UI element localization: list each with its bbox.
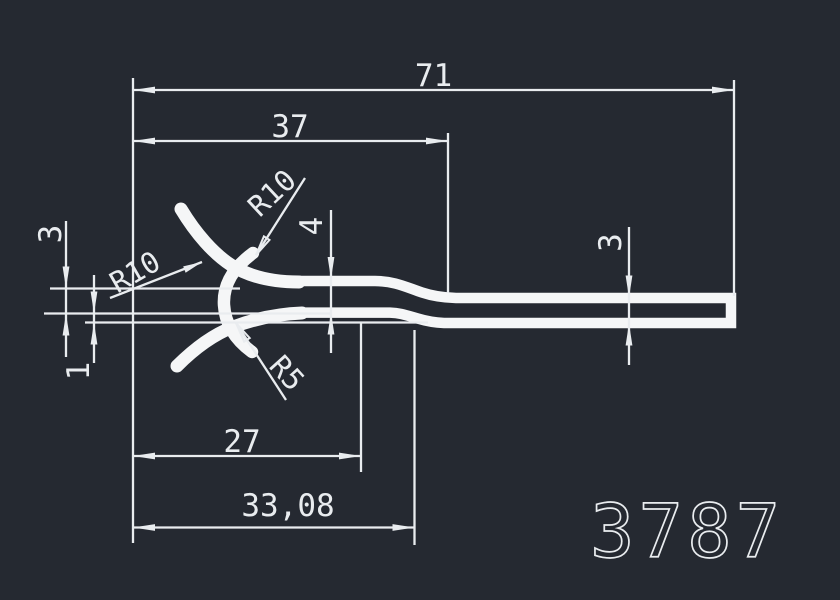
arrow-3308-left xyxy=(133,524,155,531)
dim-label-27: 27 xyxy=(223,424,260,460)
arrow-1-bottom xyxy=(91,323,98,345)
arrow-27-left xyxy=(133,453,155,460)
dim-label-4: 4 xyxy=(294,217,330,236)
arrow-4-top xyxy=(328,257,335,279)
radius-label-r10-upper: R10 xyxy=(241,163,303,224)
dim-label-33-08: 33,08 xyxy=(241,488,334,524)
radius-label-r10-left: R10 xyxy=(104,244,166,300)
dim-label-37: 37 xyxy=(271,109,308,145)
cad-drawing: 71 37 27 33,08 4 3 3 1 R10 R10 R5 3787 xyxy=(0,0,840,600)
dim-label-1: 1 xyxy=(61,362,97,381)
dim-label-3-right: 3 xyxy=(593,233,629,252)
arrow-3308-right xyxy=(393,524,415,531)
arrow-71-left xyxy=(133,87,155,94)
part-number-text: 3787 xyxy=(590,489,784,575)
dim-label-3-left: 3 xyxy=(33,225,69,244)
arrow-3-left-bottom xyxy=(63,314,70,336)
arrow-r10-left-leader xyxy=(183,262,202,273)
profile-outline xyxy=(177,209,731,366)
arrow-1-top xyxy=(91,292,98,314)
radius-label-r5: R5 xyxy=(263,349,312,398)
arrow-3-left-top xyxy=(63,267,70,289)
arrow-37-left xyxy=(133,138,155,145)
arrow-37-right xyxy=(426,138,448,145)
profile-bar-outline xyxy=(294,281,731,323)
arrow-27-right xyxy=(339,453,361,460)
dim-label-71: 71 xyxy=(415,58,452,94)
arrow-71-right xyxy=(712,87,734,94)
